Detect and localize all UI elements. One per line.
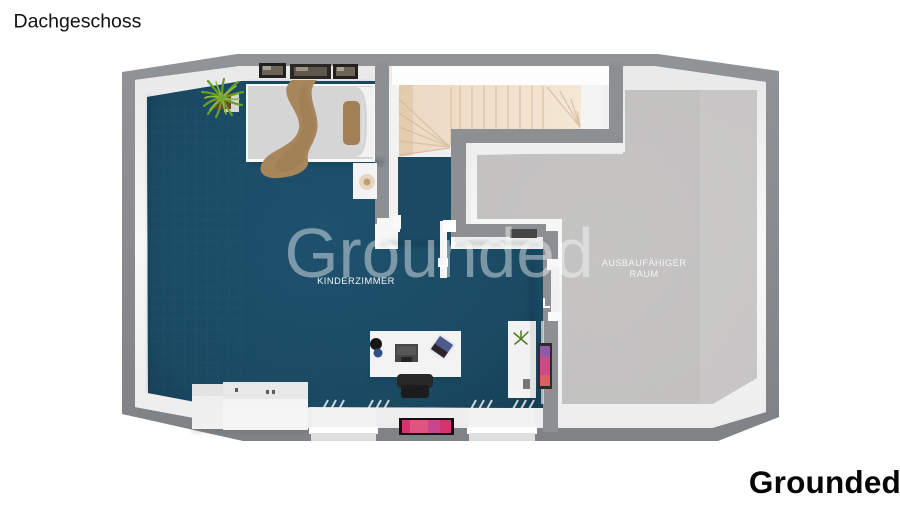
svg-text:AUSBAUFÄHIGER: AUSBAUFÄHIGER (602, 258, 687, 268)
svg-text:RAUM: RAUM (630, 269, 659, 279)
svg-text:KINDERZIMMER: KINDERZIMMER (317, 276, 395, 286)
svg-text:Grounded: Grounded (749, 464, 900, 500)
svg-text:Dachgeschoss: Dachgeschoss (14, 11, 142, 33)
